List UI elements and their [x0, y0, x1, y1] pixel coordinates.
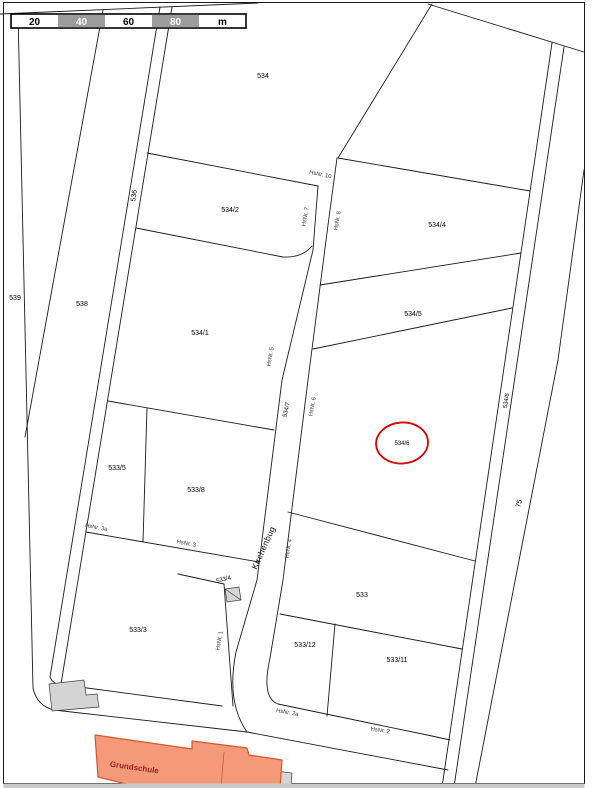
scale-bar-label-20: 20	[29, 17, 41, 28]
scale-bar-label-60: 60	[123, 17, 135, 28]
scale-bar-label-80: 80	[170, 17, 182, 28]
map-canvas[interactable]: Grundschule 534 534/2 534/4 534/1 534/5 …	[0, 0, 600, 788]
parcel-label-538: 538	[76, 301, 88, 308]
scale-bar-label-40: 40	[76, 17, 88, 28]
parcel-label-534-2: 534/2	[221, 207, 239, 214]
parcel-label-534: 534	[257, 73, 269, 80]
parcel-label-533: 533	[356, 592, 368, 599]
parcel-label-534-1: 534/1	[191, 330, 209, 337]
parcel-label-534-6[interactable]: 534/6	[394, 441, 410, 447]
parcel-label-539: 539	[9, 295, 21, 302]
parcel-label-533-5: 533/5	[108, 465, 126, 472]
bottom-map-edge-strip	[4, 784, 585, 788]
scale-bar: 20 40 60 80 m	[11, 14, 246, 28]
parcel-label-533-12: 533/12	[294, 642, 316, 649]
parcel-label-533-11: 533/11	[387, 657, 408, 664]
parcel-label-534-4: 534/4	[428, 222, 446, 229]
parcel-label-534-5: 534/5	[404, 311, 422, 318]
small-building-533-4	[225, 587, 241, 602]
parcel-label-533-3: 533/3	[129, 627, 147, 634]
cadastral-map[interactable]: Grundschule 534 534/2 534/4 534/1 534/5 …	[0, 0, 600, 788]
scale-bar-label-m: m	[218, 17, 227, 28]
parcel-label-533-8: 533/8	[187, 487, 205, 494]
